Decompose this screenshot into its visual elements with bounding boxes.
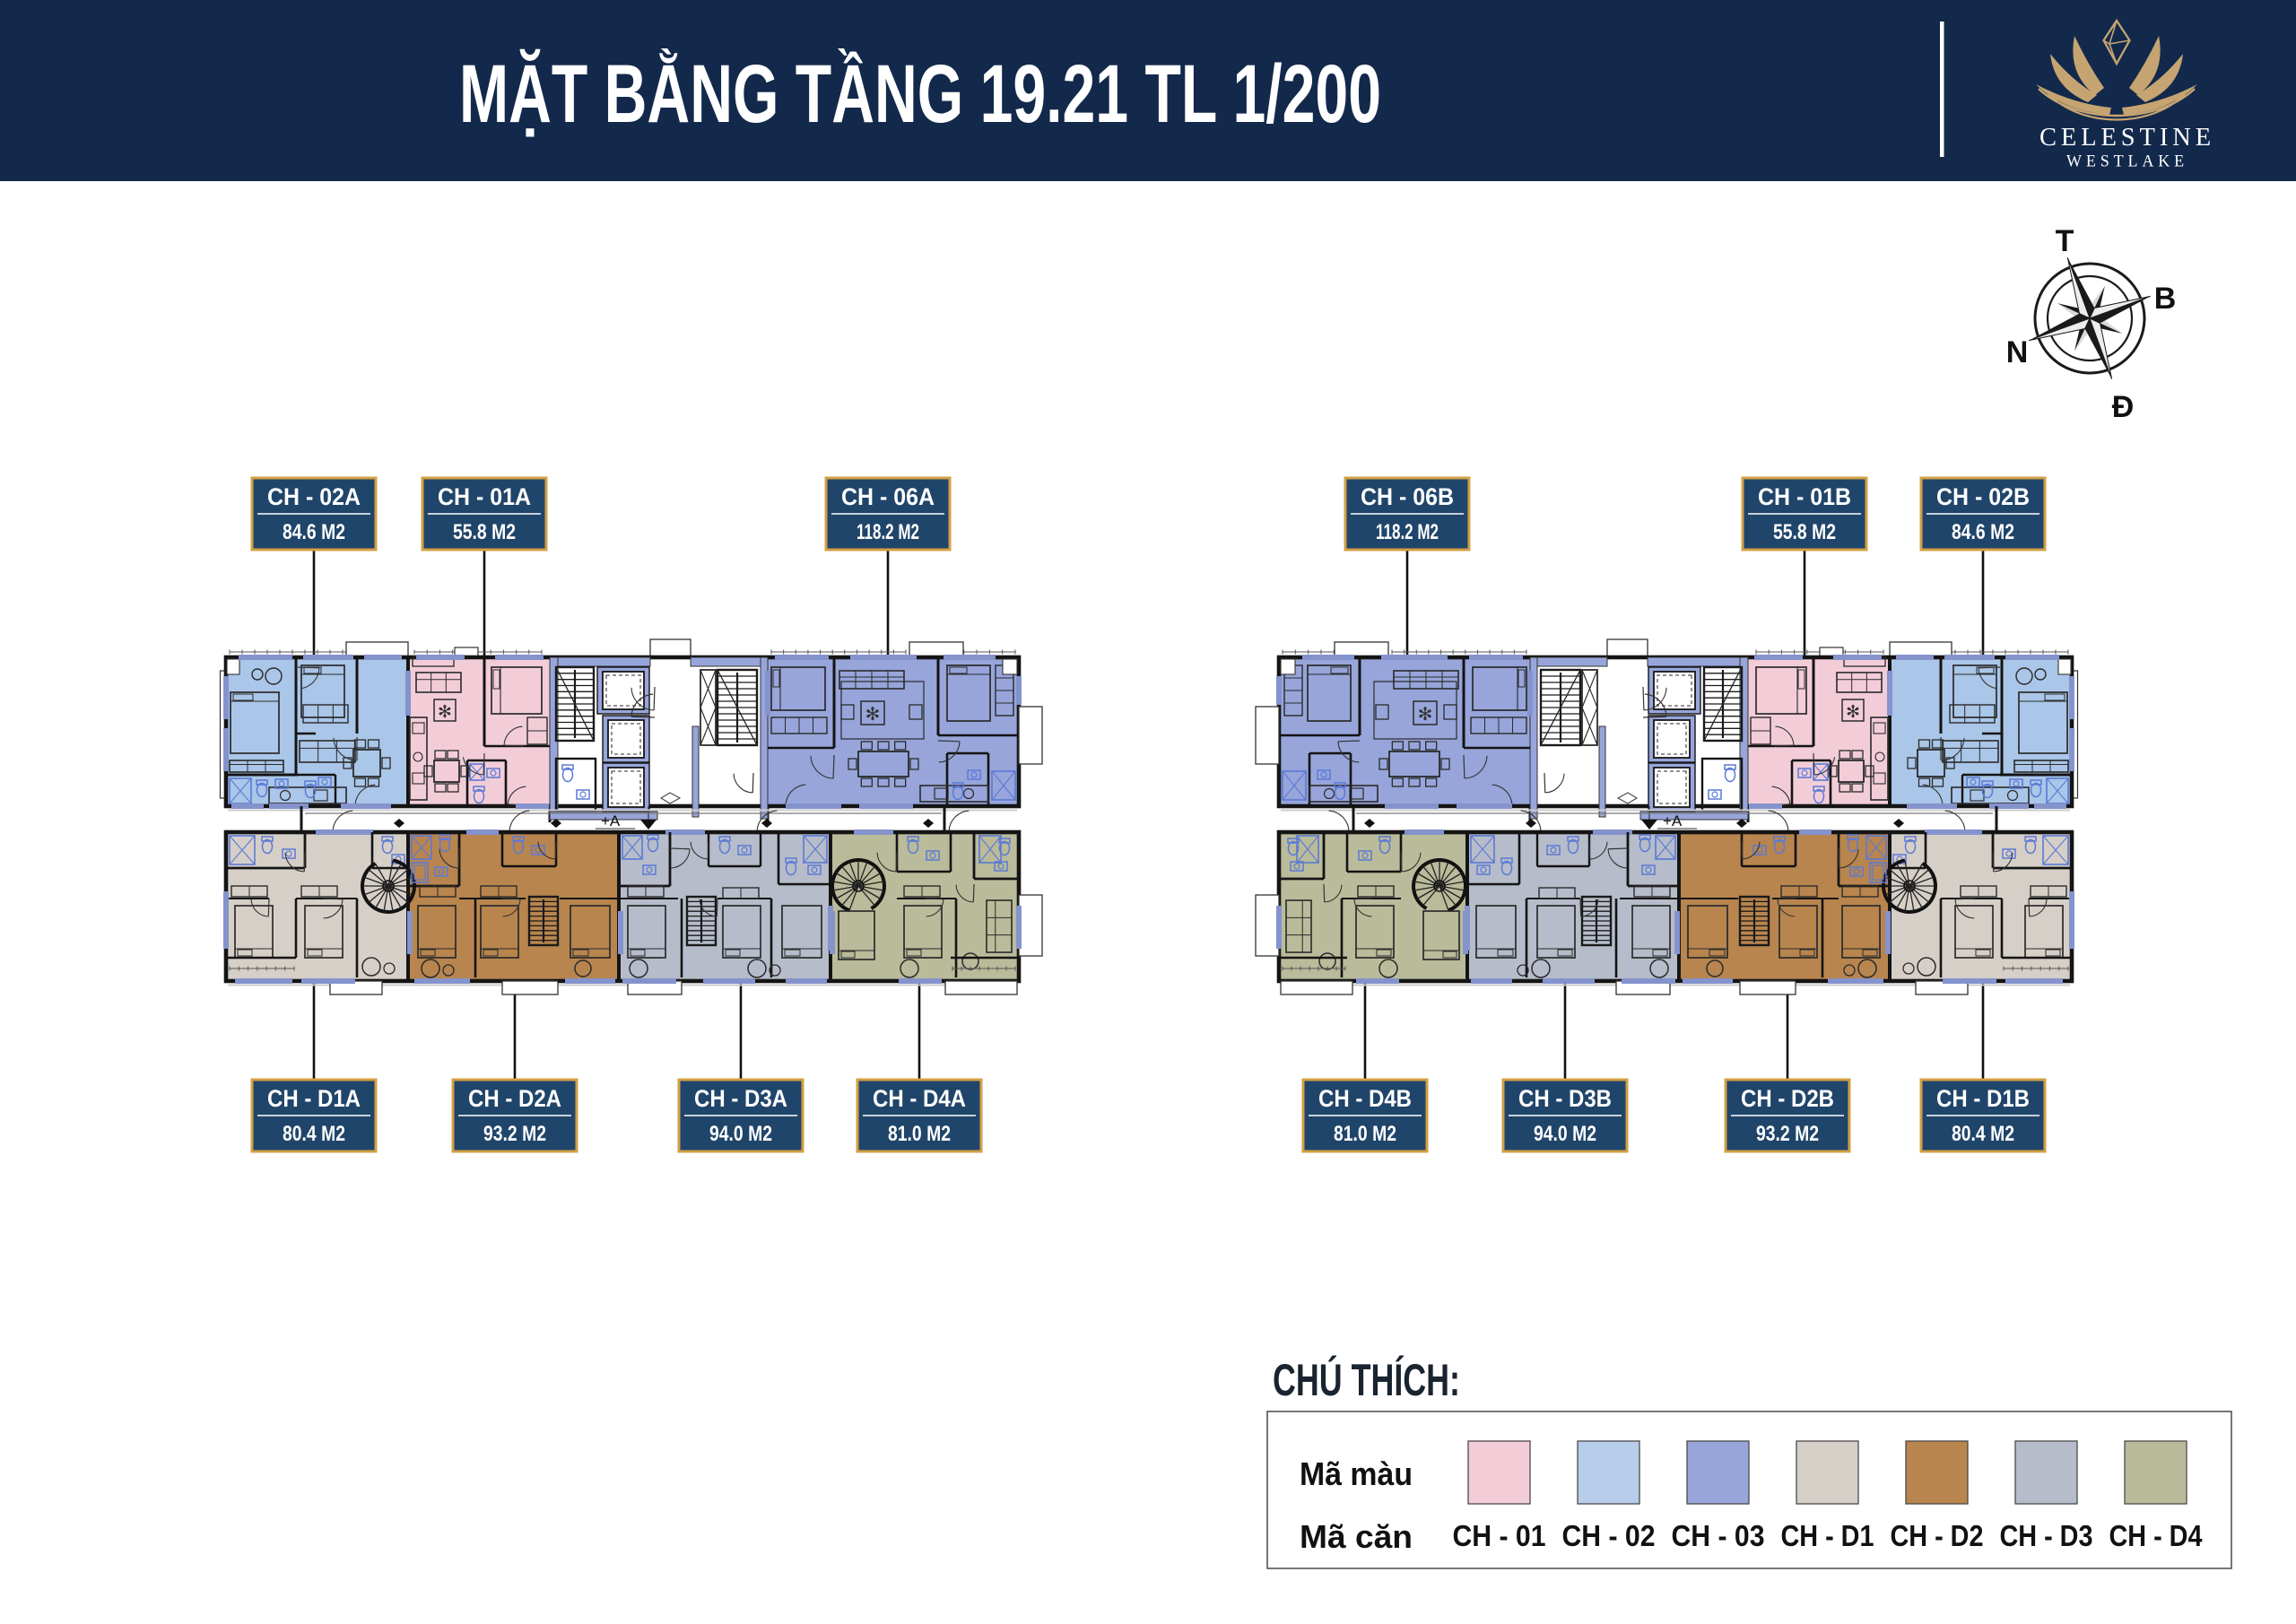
svg-text:81.0 M2: 81.0 M2 <box>888 1122 951 1146</box>
svg-text:Mã căn: Mã căn <box>1300 1518 1413 1555</box>
svg-text:Đ: Đ <box>2112 390 2135 424</box>
svg-text:CH - 03: CH - 03 <box>1672 1519 1765 1552</box>
svg-text:CH - 02: CH - 02 <box>1562 1519 1656 1552</box>
svg-text:CH - D2A: CH - D2A <box>468 1085 561 1112</box>
svg-text:CH - 01B: CH - 01B <box>1758 483 1851 510</box>
svg-text:CH - D3: CH - D3 <box>2000 1519 2093 1552</box>
svg-text:80.4 M2: 80.4 M2 <box>283 1122 345 1146</box>
svg-text:✻: ✻ <box>865 705 881 725</box>
svg-text:84.6 M2: 84.6 M2 <box>283 520 345 544</box>
svg-text:CH - D3A: CH - D3A <box>694 1085 787 1112</box>
svg-text:118.2 M2: 118.2 M2 <box>1376 520 1439 544</box>
svg-text:94.0 M2: 94.0 M2 <box>709 1122 772 1146</box>
svg-text:81.0 M2: 81.0 M2 <box>1334 1122 1396 1146</box>
svg-text:CH - D1: CH - D1 <box>1781 1519 1874 1552</box>
svg-text:CH - 06B: CH - 06B <box>1361 483 1454 510</box>
svg-text:55.8 M2: 55.8 M2 <box>1773 520 1836 544</box>
svg-text:CH - D2B: CH - D2B <box>1741 1085 1834 1112</box>
svg-text:CH - 02A: CH - 02A <box>267 483 361 510</box>
svg-text:84.6 M2: 84.6 M2 <box>1952 520 2014 544</box>
svg-text:CH - 01A: CH - 01A <box>438 483 531 510</box>
svg-text:55.8 M2: 55.8 M2 <box>453 520 516 544</box>
svg-text:MẶT BẰNG TẦNG 19.21 TL 1/200: MẶT BẰNG TẦNG 19.21 TL 1/200 <box>459 48 1381 140</box>
svg-text:CH - D4B: CH - D4B <box>1318 1085 1412 1112</box>
svg-text:CH - D3B: CH - D3B <box>1518 1085 1612 1112</box>
svg-text:118.2 M2: 118.2 M2 <box>857 520 919 544</box>
svg-text:+A: +A <box>601 812 621 829</box>
svg-text:94.0 M2: 94.0 M2 <box>1534 1122 1596 1146</box>
svg-text:✻: ✻ <box>438 703 452 722</box>
svg-text:CH - D1A: CH - D1A <box>267 1085 361 1112</box>
svg-text:+A: +A <box>1663 812 1683 829</box>
svg-text:Mã màu: Mã màu <box>1300 1455 1413 1492</box>
svg-text:CH - D1B: CH - D1B <box>1936 1085 2030 1112</box>
svg-text:WESTLAKE: WESTLAKE <box>2066 153 2188 171</box>
svg-text:80.4 M2: 80.4 M2 <box>1952 1122 2014 1146</box>
svg-text:CHÚ THÍCH:: CHÚ THÍCH: <box>1273 1355 1460 1405</box>
svg-text:CH - 06A: CH - 06A <box>841 483 935 510</box>
svg-text:CH - 01: CH - 01 <box>1453 1519 1546 1552</box>
svg-text:93.2 M2: 93.2 M2 <box>483 1122 546 1146</box>
svg-text:CH - D2: CH - D2 <box>1891 1519 1984 1552</box>
svg-text:93.2 M2: 93.2 M2 <box>1756 1122 1819 1146</box>
svg-text:N: N <box>2006 335 2029 369</box>
svg-text:B: B <box>2154 282 2177 316</box>
svg-text:T: T <box>2056 224 2074 258</box>
svg-text:CH - D4A: CH - D4A <box>873 1085 966 1112</box>
svg-text:CELESTINE: CELESTINE <box>2039 123 2215 152</box>
svg-text:CH - 02B: CH - 02B <box>1936 483 2030 510</box>
svg-text:CH - D4: CH - D4 <box>2109 1519 2204 1552</box>
